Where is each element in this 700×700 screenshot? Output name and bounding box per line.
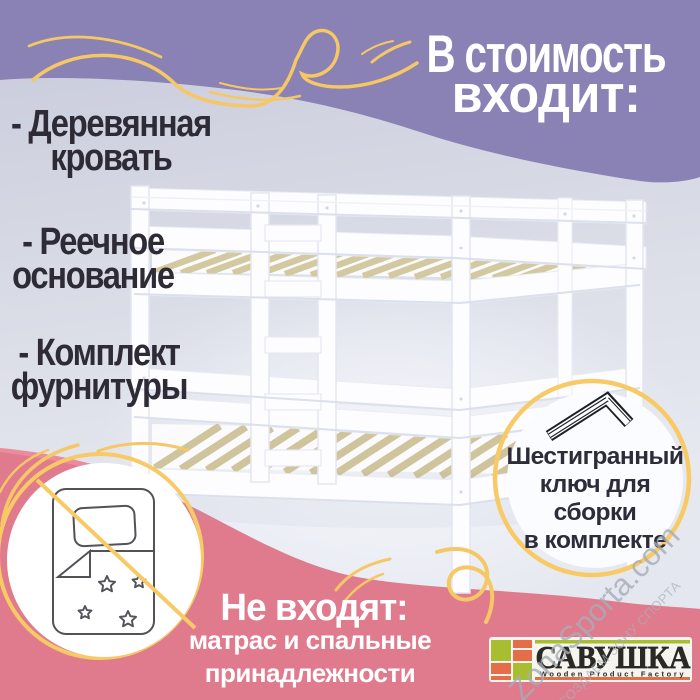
svg-text:Wooden Product Factory: Wooden Product Factory <box>540 670 686 679</box>
